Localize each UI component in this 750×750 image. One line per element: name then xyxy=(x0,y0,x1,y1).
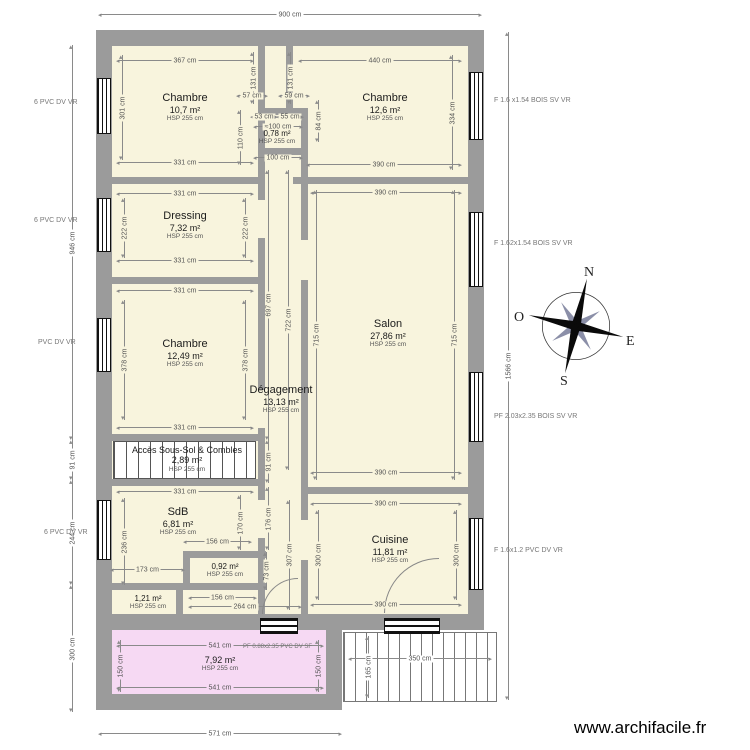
dimension: 715 cm xyxy=(454,190,455,480)
door-gap xyxy=(258,200,265,238)
dimension: 715 cm xyxy=(316,190,317,480)
wall-int xyxy=(308,487,468,494)
dimension: 222 cm xyxy=(245,198,246,258)
dimension: 390 cm xyxy=(308,164,460,165)
dimension: 150 cm xyxy=(318,640,319,692)
compass-east: E xyxy=(626,334,635,350)
compass-west: O xyxy=(514,310,524,326)
dimension: 331 cm xyxy=(118,193,252,194)
compass-graphic xyxy=(520,270,632,382)
dimension: 541 cm xyxy=(118,687,322,688)
compass-rose: N O E S xyxy=(520,270,632,382)
dimension: 390 cm xyxy=(312,472,460,473)
dimension: 55 cm xyxy=(278,116,302,117)
dimension: 900 cm xyxy=(100,14,480,15)
dimension: 367 cm xyxy=(118,60,252,61)
wall-int xyxy=(112,177,265,184)
room-label-wc-top: 0,78 m²HSP 255 cm xyxy=(247,129,307,146)
dimension: 73 cm xyxy=(266,552,267,590)
opening-label: 6 PVC DV VR xyxy=(34,99,78,106)
compass-south: S xyxy=(560,374,568,390)
dimension: 84 cm xyxy=(318,100,319,142)
dimension: 390 cm xyxy=(312,503,460,504)
dimension: 440 cm xyxy=(300,60,460,61)
room-label-wc-2: 0,92 m²HSP 255 cm xyxy=(190,562,260,579)
room-label-chambre-3: Chambre12,49 m²HSP 255 cm xyxy=(125,338,245,368)
window xyxy=(97,78,111,134)
wall-annex-bottom xyxy=(96,694,342,710)
room-label-degagement: Dégagement13,13 m²HSP 255 cm xyxy=(231,384,331,414)
opening-label: PVC DV VR xyxy=(38,339,76,346)
dimension: 331 cm xyxy=(118,260,252,261)
dimension: 331 cm xyxy=(118,162,252,163)
room-label-chambre-1: Chambre10,7 m²HSP 255 cm xyxy=(125,92,245,122)
window xyxy=(97,318,111,372)
room-label-cuisine: Cuisine11,81 m²HSP 255 cm xyxy=(330,534,450,564)
room-label-veranda: 7,92 m²HSP 255 cm xyxy=(160,655,280,673)
window xyxy=(469,372,483,442)
room-label-reduit: 1,21 m²HSP 255 cm xyxy=(113,594,183,611)
dimension: ≈100 cm xyxy=(255,126,301,127)
dimension: 307 cm xyxy=(289,500,290,610)
dimension: 390 cm xyxy=(312,192,460,193)
floor-plan-canvas: 900 cm 946 cm 91 cm 244 cm 300 cm 1566 c… xyxy=(0,0,750,750)
wall-annex-right xyxy=(326,630,342,694)
wall-int xyxy=(112,434,258,441)
dimension: 150 cm xyxy=(120,640,121,692)
window xyxy=(469,518,483,590)
room-label-acces: Accès Sous-Sol & Combles2,89 m²HSP 255 c… xyxy=(112,445,262,473)
dimension: 301 cm xyxy=(122,55,123,160)
window xyxy=(97,198,111,252)
opening-label: F 1.6 x1.54 BOIS SV VR xyxy=(494,97,571,104)
dimension: 300 cm xyxy=(72,585,73,712)
dimension: 53 cm xyxy=(252,116,276,117)
dimension: 264 cm xyxy=(190,606,300,607)
wall-int xyxy=(293,177,468,184)
door-gap xyxy=(258,500,265,538)
dimension: 331 cm xyxy=(118,427,252,428)
dimension: 176 cm xyxy=(268,487,269,550)
kitchen-threshold xyxy=(384,618,440,634)
watermark: www.archifacile.fr xyxy=(574,718,706,738)
dimension: 331 cm xyxy=(118,290,252,291)
dimension: 173 cm xyxy=(112,569,183,570)
room-label-salon: Salon27,86 m²HSP 255 cm xyxy=(328,318,448,348)
wall-int xyxy=(112,479,258,486)
opening-label: 6 PVC DV VR xyxy=(44,529,88,536)
room-label-dressing: Dressing7,32 m²HSP 255 cm xyxy=(125,210,245,240)
wall-int xyxy=(183,551,266,558)
room-label-chambre-2: Chambre12,6 m²HSP 255 cm xyxy=(325,92,445,122)
opening-label: PF 2.03x2.35 BOIS SV VR xyxy=(494,413,577,420)
wall-int xyxy=(183,583,266,590)
dimension: 91 cm xyxy=(72,440,73,480)
window xyxy=(469,212,483,287)
dimension: 571 cm xyxy=(100,733,340,734)
opening-label: F 1.62x1.54 BOIS SV VR xyxy=(494,240,573,247)
door-gap xyxy=(301,240,308,280)
window xyxy=(97,500,111,560)
entry-threshold xyxy=(260,618,298,634)
opening-label: PF 0.88x2.35 PVC DV SF xyxy=(243,644,312,650)
dimension: 300 cm xyxy=(456,510,457,600)
compass-north: N xyxy=(584,265,594,281)
dimension: 334 cm xyxy=(452,55,453,170)
dimension: 331 cm xyxy=(118,491,252,492)
opening-label: 6 PVC DV VR xyxy=(34,217,78,224)
opening-label: F 1.6x1.2 PVC DV VR xyxy=(494,547,563,554)
dimension: 722 cm xyxy=(288,170,289,470)
window xyxy=(469,72,483,140)
dimension: 156 cm xyxy=(190,597,255,598)
room-label-sdb: SdB6,81 m²HSP 255 cm xyxy=(118,506,238,536)
dimension: 390 cm xyxy=(312,604,460,605)
dimension: 165 cm xyxy=(368,636,369,698)
dimension: 59 cm xyxy=(280,95,308,96)
wall-top xyxy=(96,30,484,46)
dimension: 100 cm xyxy=(255,157,301,158)
door-gap xyxy=(301,520,308,560)
dimension: 1566 cm xyxy=(508,32,509,700)
dimension: 300 cm xyxy=(318,510,319,600)
wall-int xyxy=(112,277,258,284)
dimension: 91 cm xyxy=(268,440,269,483)
dimension: 156 cm xyxy=(185,541,250,542)
